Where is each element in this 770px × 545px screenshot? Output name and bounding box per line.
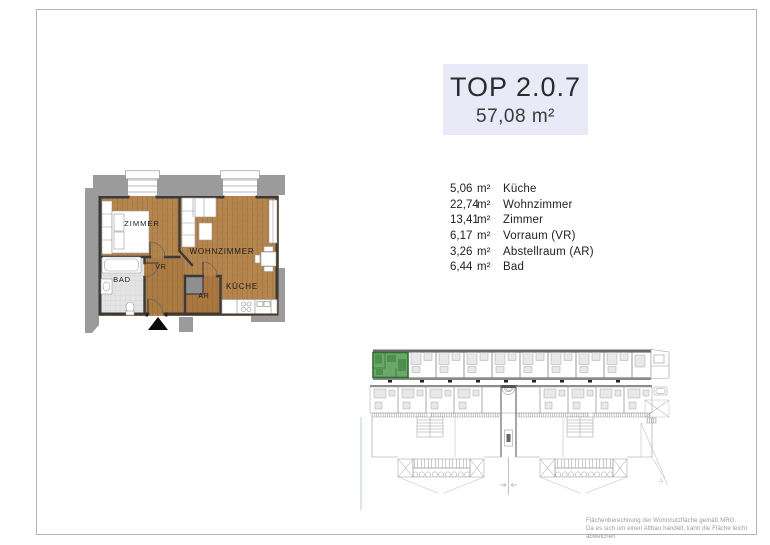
room-area-value: 5,06 — [450, 182, 477, 198]
room-label-ar: AR — [198, 293, 209, 300]
room-label-zimmer: ZIMMER — [124, 219, 160, 228]
room-area-value: 6,17 — [450, 229, 477, 245]
room-label-bad: BAD — [113, 275, 131, 284]
top-apartment-row — [373, 350, 651, 383]
footnote-line-1: Flächenberechnung der Wohnnutzfläche gem… — [586, 517, 758, 525]
room-name: Küche — [503, 182, 537, 198]
room-name: Zimmer — [503, 213, 543, 229]
sink — [101, 279, 112, 294]
room-area-unit: m² — [477, 213, 503, 229]
bathtub — [102, 257, 141, 273]
door-threshold — [146, 313, 149, 317]
room-area-unit: m² — [477, 260, 503, 276]
room-area-value: 3,26 — [450, 245, 477, 261]
room-name: Wohnzimmer — [503, 198, 573, 214]
room-row: 3,26 m² Abstellraum (AR) — [450, 245, 594, 261]
entrance-arrow-icon — [148, 317, 168, 330]
room-row: 6,44 m² Bad — [450, 260, 594, 276]
room-area-unit: m² — [477, 182, 503, 198]
balcony-band — [372, 413, 650, 417]
room-area-value: 6,44 — [450, 260, 477, 276]
room-label-vr: VR — [155, 264, 166, 271]
room-row: 22,74 m² Wohnzimmer — [450, 198, 594, 214]
footnote-line-2: Da es sich um einen Altbau handelt, kann… — [586, 525, 758, 541]
room-label-kueche: KÜCHE — [226, 282, 258, 291]
toilet — [126, 302, 134, 312]
top-row-annex — [651, 350, 669, 379]
room-name: Vorraum (VR) — [503, 229, 576, 245]
door-threshold — [165, 313, 168, 317]
plan-sheet: TOP 2.0.7 57,08 m² — [0, 0, 770, 545]
room-area-unit: m² — [477, 245, 503, 261]
unit-title-box: TOP 2.0.7 57,08 m² — [443, 64, 588, 135]
room-label-wohnzimmer: WOHNZIMMER — [190, 247, 255, 256]
unit-title: TOP 2.0.7 — [450, 72, 581, 103]
shaft — [185, 276, 203, 294]
room-name: Bad — [503, 260, 524, 276]
room-list: 5,06 m² Küche 22,74 m² Wohnzimmer 13,41 … — [450, 182, 594, 276]
terraces — [398, 459, 627, 493]
room-area-unit: m² — [477, 229, 503, 245]
highlighted-unit — [373, 353, 408, 378]
footnote: Flächenberechnung der Wohnnutzfläche gem… — [586, 517, 758, 541]
unit-total-area: 57,08 m² — [476, 106, 555, 128]
apartment-floor-plan: ZIMMER WOHNZIMMER VR BAD AR KÜCHE — [85, 170, 285, 335]
room-area-value: 22,74 — [450, 198, 477, 214]
room-row: 6,17 m² Vorraum (VR) — [450, 229, 594, 245]
room-area-unit: m² — [477, 198, 503, 214]
dining-table — [261, 252, 276, 266]
room-row: 5,06 m² Küche — [450, 182, 594, 198]
site-plan — [360, 335, 670, 515]
room-name: Abstellraum (AR) — [503, 245, 594, 261]
room-row: 13,41 m² Zimmer — [450, 213, 594, 229]
room-area-value: 13,41 — [450, 213, 477, 229]
second-apartment-row — [370, 385, 652, 413]
